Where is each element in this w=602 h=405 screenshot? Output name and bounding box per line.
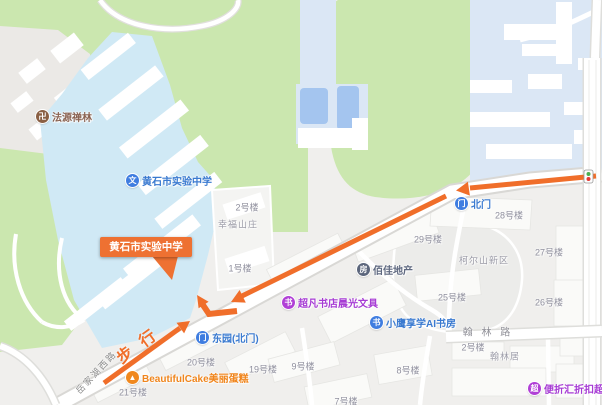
building-label-25hao: 25号楼 xyxy=(438,291,466,304)
building-label-9hao: 9号楼 xyxy=(291,360,314,373)
destination-callout[interactable]: 黄石市实验中学 xyxy=(100,237,192,257)
gate-icon: 门 xyxy=(196,331,209,344)
building-label-26hao: 26号楼 xyxy=(535,296,563,309)
callout-tail xyxy=(152,256,178,280)
building-label-21hao: 21号楼 xyxy=(119,386,147,399)
poi-discount-supermarket[interactable]: 超 便折汇折扣超市 xyxy=(528,382,602,395)
poi-xiaoying-ai-study[interactable]: 书 小鹰享学AI书房 xyxy=(370,316,456,329)
poi-label: 法源禅林 xyxy=(52,109,92,124)
area-label-hanlinju: 翰林居 xyxy=(490,350,520,363)
building-label-19hao: 19号楼 xyxy=(249,363,277,376)
bookstore-icon: 书 xyxy=(282,296,295,309)
poi-label: 佰佳地产 xyxy=(373,262,413,277)
route-arrow-east xyxy=(456,176,596,196)
temple-icon: 卍 xyxy=(36,110,49,123)
study-icon: 书 xyxy=(370,316,383,329)
building-label-29hao: 29号楼 xyxy=(414,233,442,246)
area-label-xingfushanzhuang: 幸福山庄 xyxy=(218,218,258,231)
poi-label: 超凡书店晨光文具 xyxy=(298,295,378,310)
poi-label: 北门 xyxy=(471,196,491,211)
poi-baijia-realty[interactable]: 房 佰佳地产 xyxy=(357,263,413,276)
realty-icon: 房 xyxy=(357,263,370,276)
poi-dongyuan-north-gate[interactable]: 门 东园(北门) xyxy=(196,331,259,344)
poi-fayuan-chanlin[interactable]: 卍 法源禅林 xyxy=(36,110,92,123)
poi-label: 黄石市实验中学 xyxy=(142,173,212,188)
poi-label: 东园(北门) xyxy=(212,330,259,345)
building-label-7hao: 7号楼 xyxy=(334,395,357,405)
gate-icon: 门 xyxy=(455,197,468,210)
route-arrow-turn-into-gate xyxy=(197,295,237,314)
area-label-keershan: 柯尔山新区 xyxy=(459,254,509,267)
supermarket-icon: 超 xyxy=(528,382,541,395)
building-label-8hao: 8号楼 xyxy=(396,364,419,377)
school-icon: 文 xyxy=(126,174,139,187)
poi-chaofan-bookstore[interactable]: 书 超凡书店晨光文具 xyxy=(282,296,378,309)
poi-beautifulcake-bakery[interactable]: ▲ BeautifulCake美丽蛋糕 xyxy=(126,371,249,384)
building-label-27hao: 27号楼 xyxy=(535,246,563,259)
route-overlay-layer xyxy=(0,0,602,405)
traffic-light-icon xyxy=(584,170,593,183)
poi-label: 便折汇折扣超市 xyxy=(544,381,602,396)
map-canvas[interactable]: 2号楼 幸福山庄 1号楼 20号楼 19号楼 21号楼 9号楼 8号楼 7号楼 … xyxy=(0,0,602,405)
building-label-2hao: 2号楼 xyxy=(235,201,258,214)
poi-label: BeautifulCake美丽蛋糕 xyxy=(142,370,249,385)
building-label-20hao: 20号楼 xyxy=(187,356,215,369)
building-label-28hao: 28号楼 xyxy=(495,209,523,222)
poi-north-gate[interactable]: 门 北门 xyxy=(455,197,491,210)
cake-icon: ▲ xyxy=(126,371,139,384)
building-label-hanlin-2hao: 2号楼 xyxy=(461,341,484,354)
route-arrow-along-road xyxy=(231,196,446,303)
destination-callout-text: 黄石市实验中学 xyxy=(109,241,183,253)
road-name-hanlin: 翰 林 路 xyxy=(463,324,514,339)
poi-huangshi-experimental-school[interactable]: 文 黄石市实验中学 xyxy=(126,174,212,187)
poi-label: 小鹰享学AI书房 xyxy=(386,315,456,330)
building-label-1hao: 1号楼 xyxy=(228,262,251,275)
